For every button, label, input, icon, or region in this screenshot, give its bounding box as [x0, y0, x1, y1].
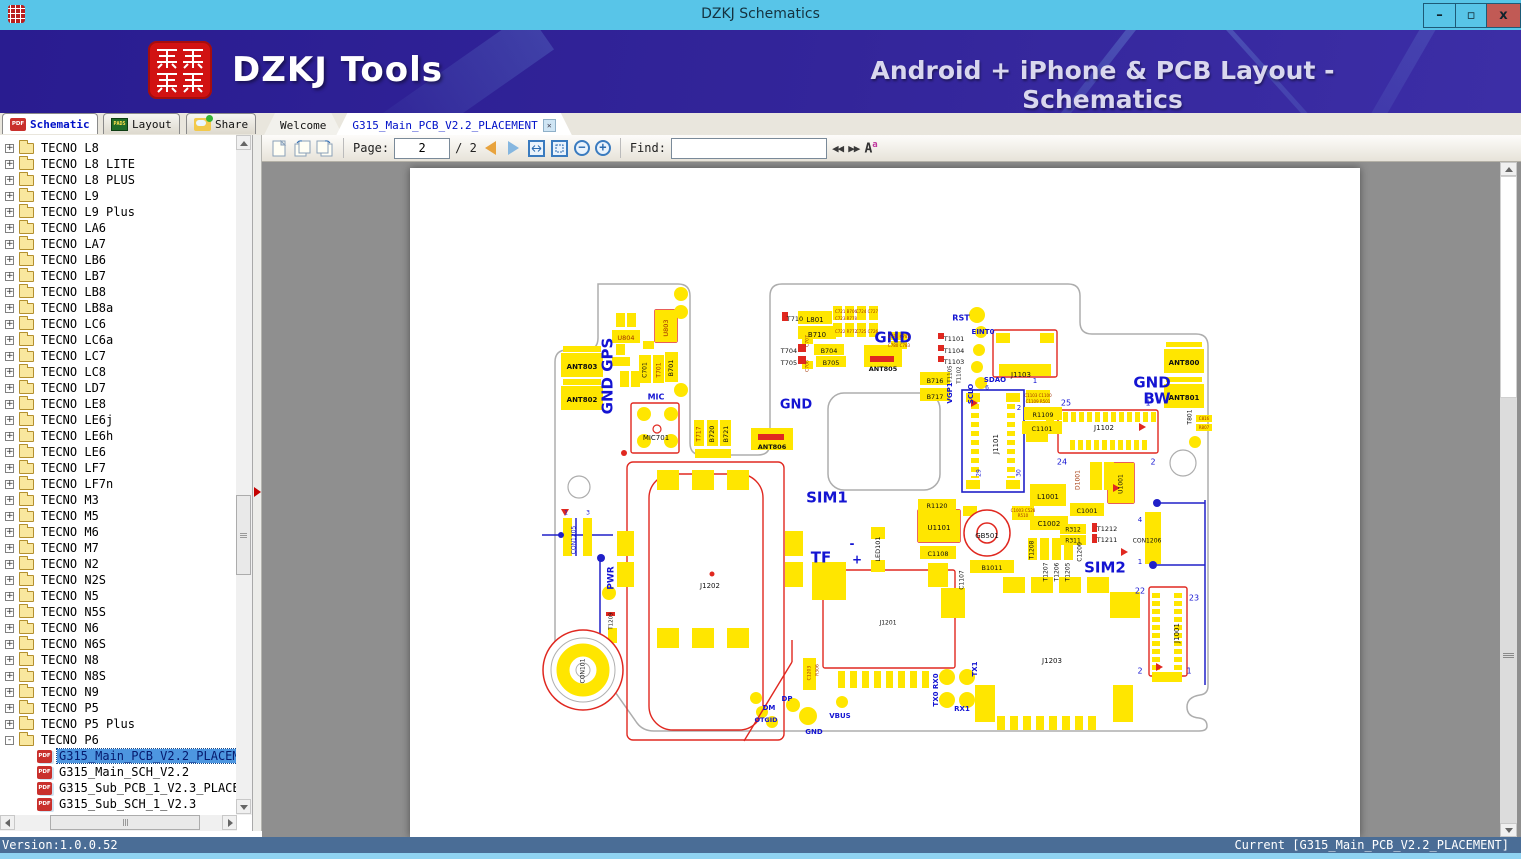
- svg-text:R510: R510: [1018, 513, 1029, 518]
- svg-text:T710: T710: [786, 315, 803, 323]
- svg-text:J1202: J1202: [699, 582, 720, 590]
- rotate-right-icon[interactable]: [316, 139, 334, 157]
- expand-icon[interactable]: +: [5, 224, 14, 233]
- tree-folder-row[interactable]: +TECNO LA6: [0, 220, 236, 236]
- window-title: DZKJ Schematics: [0, 6, 1521, 22]
- tree-folder-row[interactable]: +TECNO L9: [0, 188, 236, 204]
- folder-icon: [19, 623, 34, 634]
- svg-text:T1205: T1205: [1065, 562, 1072, 582]
- svg-text:1: 1: [1186, 667, 1191, 676]
- zoom-out-button[interactable]: −: [574, 140, 590, 156]
- folder-icon: [19, 431, 34, 442]
- svg-text:TF: TF: [811, 549, 831, 567]
- expand-icon[interactable]: +: [5, 272, 14, 281]
- svg-text:B704: B704: [821, 347, 838, 355]
- scrollbar-track[interactable]: [1500, 398, 1517, 823]
- tree-folder-row[interactable]: +TECNO M6: [0, 524, 236, 540]
- tree-folder-row[interactable]: +TECNO LF7: [0, 460, 236, 476]
- scroll-up-button[interactable]: [236, 135, 251, 150]
- svg-text:SIM1: SIM1: [806, 489, 848, 507]
- pdf-viewer-panel: Page: / 2 − + Find: ◀◀ ▶▶ Aa GND GPSGNDG…: [262, 135, 1521, 837]
- tree-folder-row[interactable]: +TECNO LB7: [0, 268, 236, 284]
- svg-text:1: 1: [1033, 377, 1037, 385]
- svg-text:C1107: C1107: [959, 570, 966, 590]
- svg-text:GB501: GB501: [975, 532, 999, 540]
- expand-icon[interactable]: +: [5, 192, 14, 201]
- schematic-tree-panel: +TECNO L8+TECNO L8 LITE+TECNO L8 PLUS+TE…: [0, 135, 253, 831]
- tree-folder-row[interactable]: +TECNO LC7: [0, 348, 236, 364]
- expand-icon[interactable]: +: [5, 208, 14, 217]
- folder-icon: [19, 687, 34, 698]
- find-label: Find:: [630, 141, 666, 155]
- doc-tab-g315_main_pcb_v2.2_placement[interactable]: G315_Main_PCB_V2.2_PLACEMENT✕: [336, 113, 571, 135]
- text-case-icon[interactable]: Aa: [864, 140, 877, 156]
- svg-text:C723 R778: C723 R778: [835, 316, 858, 321]
- pdf-icon: PDF: [10, 118, 26, 131]
- svg-text:CON1205: CON1205: [571, 525, 578, 554]
- zoom-in-button[interactable]: +: [595, 140, 611, 156]
- page-input[interactable]: [394, 138, 450, 159]
- folder-label: TECNO P6: [39, 733, 101, 747]
- folder-icon: [19, 255, 34, 266]
- folder-label: TECNO N9: [39, 685, 101, 699]
- folder-label: TECNO LC7: [39, 349, 108, 363]
- folder-icon: [19, 479, 34, 490]
- folder-label: TECNO LA6: [39, 221, 108, 235]
- svg-text:C816: C816: [1199, 416, 1210, 421]
- svg-text:SCLO: SCLO: [967, 384, 975, 404]
- svg-text:C1103 C1100: C1103 C1100: [1024, 393, 1052, 398]
- svg-text:B1011: B1011: [981, 564, 1002, 572]
- svg-text:ANT801: ANT801: [1169, 394, 1200, 402]
- folder-label: TECNO N2: [39, 557, 101, 571]
- svg-text:VBUS: VBUS: [829, 712, 850, 720]
- collapse-icon[interactable]: -: [5, 736, 14, 745]
- pdf-page: GND GPSGNDGNDGNDBWSIM1TFSIM2-+MICPWRRSTE…: [410, 168, 1360, 837]
- svg-text:L801: L801: [806, 316, 823, 324]
- svg-text:C1203: C1203: [807, 666, 813, 681]
- folder-label: TECNO LF7: [39, 461, 108, 475]
- svg-text:T1104: T1104: [943, 347, 965, 355]
- svg-text:SDAO: SDAO: [984, 376, 1006, 384]
- tree-folder-row[interactable]: +TECNO N5: [0, 588, 236, 604]
- scroll-right-button[interactable]: [222, 815, 237, 830]
- folder-icon: [19, 591, 34, 602]
- svg-text:1: 1: [1145, 399, 1150, 408]
- svg-text:T1101: T1101: [943, 335, 965, 343]
- svg-text:RST: RST: [952, 314, 970, 323]
- window-bottom-edge: [0, 853, 1521, 859]
- tree-folder-row[interactable]: +TECNO N8: [0, 652, 236, 668]
- tree-folder-row[interactable]: +TECNO L8: [0, 140, 236, 156]
- expand-icon[interactable]: +: [5, 640, 14, 649]
- svg-text:C1109 R501: C1109 R501: [1026, 399, 1051, 404]
- folder-label: TECNO P5 Plus: [39, 717, 137, 731]
- svg-text:24: 24: [1057, 458, 1067, 467]
- viewer-vertical-scrollbar[interactable]: [1500, 162, 1517, 837]
- svg-text:U804: U804: [617, 334, 634, 342]
- tree-folder-row[interactable]: +TECNO N2S: [0, 572, 236, 588]
- doc-tab-welcome[interactable]: Welcome: [264, 113, 342, 135]
- folder-icon: [19, 575, 34, 586]
- fit-page-icon[interactable]: [551, 139, 569, 157]
- folder-icon: [19, 319, 34, 330]
- folder-label: TECNO L8: [39, 141, 101, 155]
- expand-icon[interactable]: +: [5, 688, 14, 697]
- collapse-arrow-icon[interactable]: [254, 487, 261, 497]
- svg-text:RX1: RX1: [954, 705, 970, 713]
- close-tab-icon[interactable]: ✕: [543, 119, 556, 132]
- expand-icon[interactable]: +: [5, 512, 14, 521]
- folder-icon: [19, 527, 34, 538]
- tree-folder-row[interactable]: +TECNO LF7n: [0, 476, 236, 492]
- folder-label: TECNO LC8: [39, 365, 108, 379]
- document-area[interactable]: GND GPSGNDGNDGNDBWSIM1TFSIM2-+MICPWRRSTE…: [262, 162, 1521, 837]
- minimize-button[interactable]: –: [1423, 3, 1456, 28]
- scroll-up-button[interactable]: [1500, 162, 1517, 176]
- tree-folder-row[interactable]: +TECNO L8 PLUS: [0, 172, 236, 188]
- sidebar-vertical-scrollbar[interactable]: [236, 135, 252, 815]
- find-previous-icon[interactable]: ◀◀: [832, 142, 843, 155]
- tree-folder-row[interactable]: +TECNO LC6a: [0, 332, 236, 348]
- svg-text:ANT800: ANT800: [1169, 359, 1200, 367]
- scroll-left-button[interactable]: [0, 815, 15, 830]
- folder-icon: [19, 303, 34, 314]
- svg-text:C701: C701: [642, 362, 649, 378]
- svg-text:SIM2: SIM2: [1084, 559, 1126, 577]
- folder-icon: [19, 271, 34, 282]
- svg-text:C771 C782: C771 C782: [888, 334, 911, 339]
- pdf-icon: PDF: [37, 766, 52, 779]
- svg-text:ANT805: ANT805: [869, 365, 898, 373]
- svg-text:+: +: [852, 553, 862, 567]
- tree-folder-row[interactable]: +TECNO LE8: [0, 396, 236, 412]
- tab-schematic[interactable]: PDF Schematic: [2, 113, 98, 134]
- doc-tab-label: Welcome: [280, 119, 326, 132]
- folder-icon: [19, 367, 34, 378]
- folder-label: TECNO P5: [39, 701, 101, 715]
- svg-text:1: 1: [1138, 558, 1142, 566]
- expand-icon[interactable]: +: [5, 480, 14, 489]
- folder-icon: [19, 383, 34, 394]
- folder-label: TECNO L9: [39, 189, 101, 203]
- folder-label: TECNO LE6: [39, 445, 108, 459]
- folder-label: TECNO N6: [39, 621, 101, 635]
- svg-text:T717: T717: [696, 426, 703, 442]
- scrollbar-thumb[interactable]: [1500, 176, 1517, 398]
- folder-label: TECNO LF7n: [39, 477, 115, 491]
- tree-folder-row[interactable]: +TECNO L9 Plus: [0, 204, 236, 220]
- tree-document-row[interactable]: PDFG315_Main_PCB_V2.2_PLACEMENT: [0, 748, 236, 764]
- expand-icon[interactable]: +: [5, 576, 14, 585]
- tree-folder-row[interactable]: +TECNO LD7: [0, 380, 236, 396]
- svg-text:T705: T705: [780, 359, 797, 367]
- toolbar-separator: [343, 138, 344, 158]
- current-document-text: Current [G315_Main_PCB_V2.2_PLACEMENT]: [1234, 837, 1509, 853]
- svg-text:T1211: T1211: [1096, 536, 1118, 544]
- svg-text:EINT0: EINT0: [972, 328, 995, 336]
- svg-text:B716: B716: [927, 377, 944, 385]
- svg-text:B701: B701: [667, 360, 675, 377]
- svg-text:C706: C706: [805, 360, 811, 372]
- app-banner: DZKJ Tools Android + iPhone & PCB Layout…: [0, 30, 1521, 113]
- svg-text:MIC701: MIC701: [643, 434, 669, 442]
- folder-icon: [19, 399, 34, 410]
- svg-text:J1201: J1201: [878, 620, 896, 627]
- panel-splitter[interactable]: [253, 135, 262, 831]
- svg-text:MIC: MIC: [648, 393, 665, 402]
- folder-label: TECNO M3: [39, 493, 101, 507]
- folder-icon: [19, 463, 34, 474]
- tree-folder-row[interactable]: +TECNO LB8: [0, 284, 236, 300]
- single-page-icon[interactable]: [270, 139, 288, 157]
- folder-label: TECNO LB7: [39, 269, 108, 283]
- tab-share[interactable]: Share: [186, 113, 256, 134]
- svg-text:C780 C783: C780 C783: [888, 343, 911, 348]
- tree-folder-row[interactable]: +TECNO LE6: [0, 444, 236, 460]
- tree-folder-row[interactable]: +TECNO LC6: [0, 316, 236, 332]
- toolbar-separator: [620, 138, 621, 158]
- expand-icon[interactable]: +: [5, 672, 14, 681]
- expand-icon[interactable]: +: [5, 528, 14, 537]
- folder-label: TECNO N5S: [39, 605, 108, 619]
- tree-folder-row[interactable]: +TECNO LE6j: [0, 412, 236, 428]
- expand-icon[interactable]: +: [5, 256, 14, 265]
- expand-icon[interactable]: +: [5, 320, 14, 329]
- document-label: G315_Main_SCH_V2.2: [57, 765, 191, 779]
- pdf-icon: PDF: [37, 798, 52, 811]
- tree-document-row[interactable]: PDFG315_Sub_SCH_1_V2.3: [0, 796, 236, 812]
- svg-text:J1101: J1101: [992, 434, 1000, 455]
- svg-text:T1102: T1102: [957, 366, 963, 384]
- expand-icon[interactable]: +: [5, 304, 14, 313]
- folder-icon: [19, 415, 34, 426]
- svg-text:R312: R312: [1065, 527, 1081, 534]
- scroll-down-button[interactable]: [1500, 823, 1517, 837]
- folder-label: TECNO M7: [39, 541, 101, 555]
- svg-text:22: 22: [1135, 587, 1145, 596]
- expand-icon[interactable]: +: [5, 544, 14, 553]
- svg-text:B721: B721: [722, 426, 730, 443]
- brand-logo: [148, 41, 212, 99]
- app-name: DZKJ Tools: [232, 50, 443, 90]
- svg-text:T701: T701: [656, 362, 663, 378]
- next-page-button[interactable]: [505, 139, 523, 157]
- svg-text:TX0 RX0: TX0 RX0: [932, 673, 940, 706]
- previous-page-button[interactable]: [482, 139, 500, 157]
- tree-folder-row[interactable]: -TECNO P6: [0, 732, 236, 748]
- folder-icon: [19, 671, 34, 682]
- svg-text:CON1206: CON1206: [1133, 538, 1162, 545]
- folder-icon: [19, 351, 34, 362]
- expand-icon[interactable]: +: [5, 496, 14, 505]
- viewer-toolbar: Page: / 2 − + Find: ◀◀ ▶▶ Aa: [262, 135, 1521, 162]
- svg-text:T1206: T1206: [1054, 562, 1061, 582]
- tree-document-row[interactable]: PDFG315_Main_SCH_V2.2: [0, 764, 236, 780]
- expand-icon[interactable]: +: [5, 560, 14, 569]
- tree-folder-row[interactable]: +TECNO M3: [0, 492, 236, 508]
- tree-document-row[interactable]: PDFG315_Sub_PCB_1_V2.3_PLACEMENT: [0, 780, 236, 796]
- rotate-left-icon[interactable]: [293, 139, 311, 157]
- tree-folder-row[interactable]: +TECNO M5: [0, 508, 236, 524]
- svg-text:B705: B705: [823, 359, 840, 367]
- expand-icon[interactable]: +: [5, 704, 14, 713]
- tree-folder-row[interactable]: +TECNO L8 LITE: [0, 156, 236, 172]
- svg-text:LED101: LED101: [874, 536, 882, 561]
- share-icon: [194, 118, 211, 131]
- tree-folder-row[interactable]: +TECNO M7: [0, 540, 236, 556]
- svg-text:C1002: C1002: [1038, 520, 1061, 528]
- version-text: Version:1.0.0.52: [2, 837, 118, 853]
- svg-text:U803: U803: [662, 319, 670, 336]
- svg-text:23: 23: [1189, 594, 1199, 603]
- expand-icon[interactable]: +: [5, 416, 14, 425]
- folder-icon: [19, 511, 34, 522]
- svg-text:J1203: J1203: [1041, 657, 1062, 665]
- svg-text:B710: B710: [808, 331, 826, 339]
- folder-icon: [19, 607, 34, 618]
- folder-label: TECNO L9 Plus: [39, 205, 137, 219]
- expand-icon[interactable]: +: [5, 240, 14, 249]
- fit-width-icon[interactable]: [528, 139, 546, 157]
- folder-label: TECNO L8 PLUS: [39, 173, 137, 187]
- expand-icon[interactable]: +: [5, 432, 14, 441]
- tree-folder-row[interactable]: +TECNO LA7: [0, 236, 236, 252]
- svg-text:J1001: J1001: [1173, 623, 1181, 644]
- folder-label: TECNO N5: [39, 589, 101, 603]
- tree-folder-row[interactable]: +TECNO N5S: [0, 604, 236, 620]
- expand-icon[interactable]: +: [5, 336, 14, 345]
- scrollbar-grip[interactable]: [1503, 653, 1514, 659]
- svg-text:C1206: C1206: [1077, 542, 1084, 562]
- folder-icon: [19, 335, 34, 346]
- expand-icon[interactable]: +: [5, 592, 14, 601]
- svg-text:B720: B720: [708, 426, 716, 443]
- folder-label: TECNO LE8: [39, 397, 108, 411]
- pdf-icon: PDF: [37, 782, 52, 795]
- tree-folder-row[interactable]: +TECNO P5: [0, 700, 236, 716]
- expand-icon[interactable]: +: [5, 464, 14, 473]
- expand-icon[interactable]: +: [5, 144, 14, 153]
- svg-text:J1103: J1103: [1010, 371, 1031, 379]
- folder-label: TECNO LD7: [39, 381, 108, 395]
- scrollbar-thumb[interactable]: [50, 815, 200, 830]
- svg-text:ANT802: ANT802: [567, 396, 598, 404]
- expand-icon[interactable]: +: [5, 384, 14, 393]
- expand-icon[interactable]: +: [5, 160, 14, 169]
- status-bar: Version:1.0.0.52 Current [G315_Main_PCB_…: [0, 837, 1521, 853]
- application-window: DZKJ Schematics – ▫ x DZKJ Tools Android…: [0, 0, 1521, 859]
- folder-icon: [19, 239, 34, 250]
- folder-label: TECNO LC6a: [39, 333, 115, 347]
- tab-label: Share: [215, 118, 248, 131]
- expand-icon[interactable]: +: [5, 288, 14, 297]
- svg-text:L1001: L1001: [1037, 493, 1059, 501]
- tree-folder-row[interactable]: +TECNO N6S: [0, 636, 236, 652]
- folder-icon: [19, 207, 34, 218]
- tab-label: Layout: [132, 118, 172, 131]
- close-button[interactable]: x: [1486, 3, 1521, 28]
- tree-folder-row[interactable]: +TECNO N2: [0, 556, 236, 572]
- document-label: G315_Sub_SCH_1_V2.3: [57, 797, 198, 811]
- svg-text:T1208: T1208: [1029, 540, 1036, 560]
- svg-text:ANT806: ANT806: [758, 443, 787, 451]
- maximize-button[interactable]: ▫: [1455, 3, 1487, 28]
- folder-icon: [19, 287, 34, 298]
- expand-icon[interactable]: +: [5, 400, 14, 409]
- expand-icon[interactable]: +: [5, 656, 14, 665]
- expand-icon[interactable]: +: [5, 720, 14, 729]
- tree-folder-row[interactable]: +TECNO LB6: [0, 252, 236, 268]
- svg-text:-: -: [850, 537, 855, 551]
- folder-label: TECNO L8 LITE: [39, 157, 137, 171]
- expand-icon[interactable]: +: [5, 352, 14, 361]
- svg-text:4: 4: [1138, 516, 1143, 524]
- pcb-placement-drawing: GND GPSGNDGNDGNDBWSIM1TFSIM2-+MICPWRRSTE…: [410, 168, 1360, 837]
- svg-text:CON101: CON101: [580, 658, 587, 683]
- folder-icon: [19, 719, 34, 730]
- svg-text:30: 30: [1016, 469, 1023, 477]
- sidebar-horizontal-scrollbar[interactable]: [0, 815, 237, 831]
- folder-icon: [19, 447, 34, 458]
- expand-icon[interactable]: +: [5, 448, 14, 457]
- svg-text:PWR: PWR: [607, 566, 617, 590]
- tree-folder-row[interactable]: +TECNO LE6h: [0, 428, 236, 444]
- svg-text:TX1: TX1: [971, 661, 979, 676]
- tree-folder-row[interactable]: +TECNO P5 Plus: [0, 716, 236, 732]
- svg-text:2: 2: [1150, 458, 1155, 467]
- tree-folder-row[interactable]: +TECNO N8S: [0, 668, 236, 684]
- folder-label: TECNO LA7: [39, 237, 108, 251]
- folder-icon: [19, 559, 34, 570]
- svg-text:T1212: T1212: [1096, 525, 1118, 533]
- tree-folder-row[interactable]: +TECNO LB8a: [0, 300, 236, 316]
- svg-text:C724 C727: C724 C727: [856, 309, 879, 314]
- svg-text:T704: T704: [780, 347, 797, 355]
- folder-label: TECNO N8: [39, 653, 101, 667]
- expand-icon[interactable]: +: [5, 176, 14, 185]
- svg-text:T1105: T1105: [948, 365, 954, 384]
- svg-text:R306: R306: [815, 664, 821, 676]
- expand-icon[interactable]: +: [5, 624, 14, 633]
- folder-icon: [19, 159, 34, 170]
- title-bar: DZKJ Schematics – ▫ x: [0, 0, 1521, 30]
- find-next-icon[interactable]: ▶▶: [848, 142, 859, 155]
- document-label: G315_Main_PCB_V2.2_PLACEMENT: [57, 749, 236, 763]
- scroll-down-button[interactable]: [236, 799, 251, 814]
- page-total: / 2: [455, 141, 477, 155]
- scrollbar-thumb[interactable]: [236, 495, 251, 575]
- folder-tree: +TECNO L8+TECNO L8 LITE+TECNO L8 PLUS+TE…: [0, 140, 236, 815]
- doc-tab-label: G315_Main_PCB_V2.2_PLACEMENT: [352, 119, 537, 132]
- folder-icon: [19, 223, 34, 234]
- svg-text:2: 2: [1017, 404, 1021, 412]
- svg-text:GND: GND: [780, 398, 813, 413]
- tree-folder-row[interactable]: +TECNO N9: [0, 684, 236, 700]
- tree-folder-row[interactable]: +TECNO LC8: [0, 364, 236, 380]
- tree-folder-row[interactable]: +TECNO N6: [0, 620, 236, 636]
- find-input[interactable]: [671, 138, 827, 159]
- expand-icon[interactable]: +: [5, 368, 14, 377]
- svg-text:2: 2: [1137, 667, 1142, 676]
- expand-icon[interactable]: +: [5, 608, 14, 617]
- svg-text:C1001: C1001: [1076, 507, 1097, 515]
- svg-text:R1109: R1109: [1032, 411, 1053, 419]
- document-tabs: WelcomeG315_Main_PCB_V2.2_PLACEMENT✕: [264, 113, 566, 135]
- folder-icon: [19, 543, 34, 554]
- folder-icon: [19, 639, 34, 650]
- tab-layout[interactable]: PADS Layout: [103, 113, 180, 134]
